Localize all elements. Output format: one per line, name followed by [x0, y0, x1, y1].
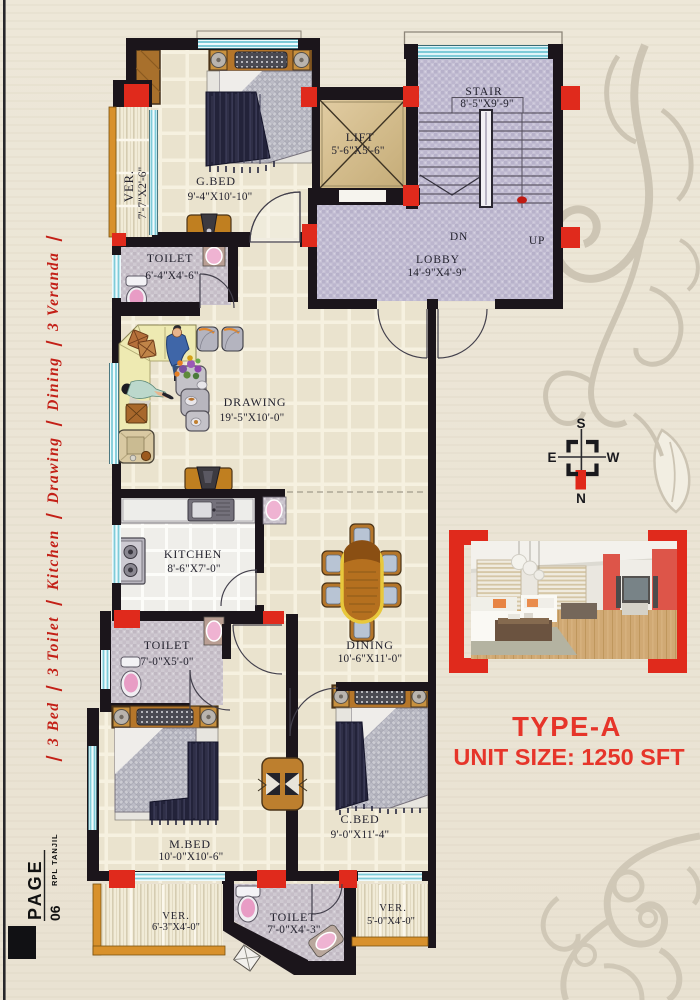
svg-text:TOILET: TOILET — [144, 638, 191, 652]
svg-text:TOILET: TOILET — [147, 251, 194, 265]
svg-text:7'-0"X4'-3": 7'-0"X4'-3" — [267, 924, 320, 936]
svg-text:M.BED: M.BED — [169, 837, 211, 851]
svg-text:STAIR: STAIR — [465, 86, 502, 98]
svg-text:DINING: DINING — [346, 638, 393, 652]
svg-text:PAGE: PAGE — [25, 858, 45, 920]
svg-text:7'-7"X2'-6": 7'-7"X2'-6" — [137, 167, 149, 220]
svg-text:DN: DN — [450, 231, 468, 243]
svg-text:10'-6"X11'-0": 10'-6"X11'-0" — [338, 653, 402, 665]
svg-text:7'-0"X5'-0": 7'-0"X5'-0" — [140, 656, 193, 668]
svg-text:6'-4"X4'-6": 6'-4"X4'-6" — [145, 270, 198, 282]
svg-text:UNIT SIZE: 1250 SFT: UNIT SIZE: 1250 SFT — [453, 744, 685, 770]
svg-text:8'-5"X9'-9": 8'-5"X9'-9" — [460, 98, 513, 110]
svg-text:E: E — [547, 450, 556, 465]
svg-text:TYPE-A: TYPE-A — [512, 711, 622, 742]
svg-text:6'-3"X4'-0": 6'-3"X4'-0" — [152, 922, 200, 933]
svg-text:KITCHEN: KITCHEN — [164, 547, 222, 561]
svg-text:19'-5"X10'-0": 19'-5"X10'-0" — [220, 412, 285, 424]
svg-text:5'-6"X5'-6": 5'-6"X5'-6" — [331, 145, 384, 157]
svg-text:VER.: VER. — [379, 903, 407, 914]
svg-text:10'-0"X10'-6": 10'-0"X10'-6" — [159, 851, 224, 863]
svg-text:G.BED: G.BED — [196, 174, 236, 188]
svg-text:UP: UP — [529, 235, 545, 247]
svg-text:5'-0"X4'-0": 5'-0"X4'-0" — [367, 916, 415, 927]
svg-text:9'-4"X10'-10": 9'-4"X10'-10" — [188, 191, 253, 203]
svg-text:8'-6"X7'-0": 8'-6"X7'-0" — [167, 563, 220, 575]
svg-text:06: 06 — [47, 905, 63, 921]
svg-text:DRAWING: DRAWING — [224, 395, 287, 409]
svg-text:C.BED: C.BED — [340, 812, 379, 826]
svg-text:❘ 3 Bed ❘ 3 Toilet ❘ Kitchen ❘: ❘ 3 Bed ❘ 3 Toilet ❘ Kitchen ❘ Drawing ❘… — [45, 231, 63, 766]
svg-text:N: N — [576, 491, 586, 506]
svg-text:RPL TANJIL: RPL TANJIL — [50, 833, 59, 886]
svg-text:LIFT: LIFT — [346, 130, 375, 144]
svg-text:TOILET: TOILET — [270, 910, 317, 924]
svg-text:9'-0"X11'-4": 9'-0"X11'-4" — [331, 829, 390, 841]
svg-text:14'-9"X4'-9": 14'-9"X4'-9" — [407, 267, 466, 279]
svg-text:W: W — [607, 450, 620, 465]
svg-text:VER.: VER. — [162, 911, 190, 922]
svg-text:S: S — [576, 416, 585, 431]
svg-text:VER.: VER. — [122, 170, 136, 202]
svg-text:LOBBY: LOBBY — [416, 254, 460, 266]
